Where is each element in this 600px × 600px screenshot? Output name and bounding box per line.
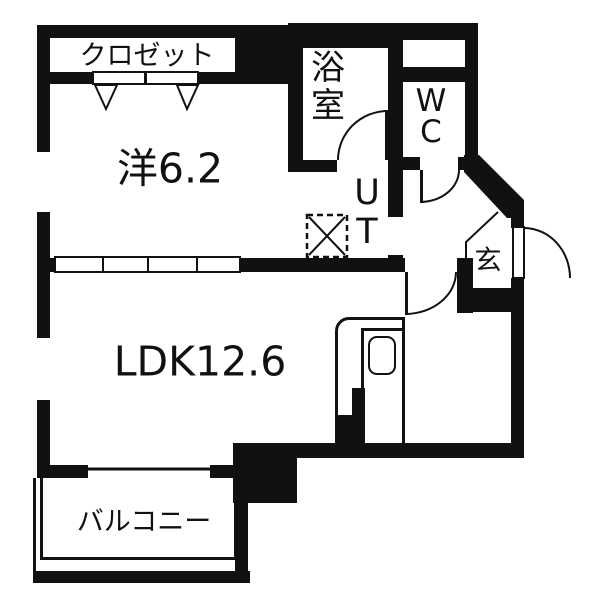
utility-label: UT [348, 174, 386, 252]
folding-door-icon [95, 85, 117, 109]
washer-pan-icon [307, 215, 347, 257]
wall-ps-divider [402, 67, 465, 82]
wall-wc-bottom-left [403, 157, 420, 170]
ldk-door-arc [405, 272, 457, 315]
wall-bath-wc-divider [388, 23, 403, 217]
wall-room-bottom-mid [240, 258, 405, 272]
balcony-label: バルコニー [77, 509, 211, 536]
wall-room-bottom-left [37, 258, 55, 272]
entrance-door-arc [524, 227, 571, 278]
wall-right-lower [511, 278, 524, 458]
wall-balcony-door-left [37, 465, 88, 478]
wall-balcony-right [235, 503, 248, 573]
bathroom-label: 浴室 [309, 49, 347, 126]
wall-top [37, 25, 300, 38]
folding-door-icon [177, 85, 198, 109]
sliding-door [55, 257, 240, 272]
ldk-label: LDK12.6 [114, 342, 287, 383]
wall-left-mid [37, 212, 50, 338]
washer-pan-cross [309, 217, 345, 255]
wall-left-upper [37, 25, 50, 152]
wall-bath-left [288, 25, 303, 172]
kitchen-sink-icon [368, 336, 396, 375]
wall-wc-bottom-right [458, 157, 465, 170]
wall-bath-bottom [288, 160, 337, 172]
wall-diagonal [464, 155, 524, 218]
closet-label: クロゼット [80, 43, 215, 70]
wall-wc-right [465, 23, 478, 157]
washer-pan-cross [309, 217, 345, 255]
wall-kitchen-stub-h [335, 415, 365, 446]
wc-label: WC [412, 86, 450, 148]
wall-step-block [233, 443, 297, 503]
wall-balcony-left-line [33, 478, 36, 583]
wall-bath-top [288, 23, 403, 48]
wall-entrance-horiz [457, 288, 512, 312]
wall-balcony-bottom [33, 571, 250, 583]
floor-plan: クロゼット 洋6.2 浴室 WC UT 玄 LDK12.6 バルコニー [0, 0, 600, 600]
western-room-label: 洋6.2 [117, 149, 223, 190]
wc-door-arc [420, 170, 460, 203]
wall-left-lower [37, 400, 50, 465]
entrance-label: 玄 [475, 248, 502, 275]
wall-closet-bottom [37, 72, 300, 84]
wall-balcony-door-right [210, 465, 237, 478]
